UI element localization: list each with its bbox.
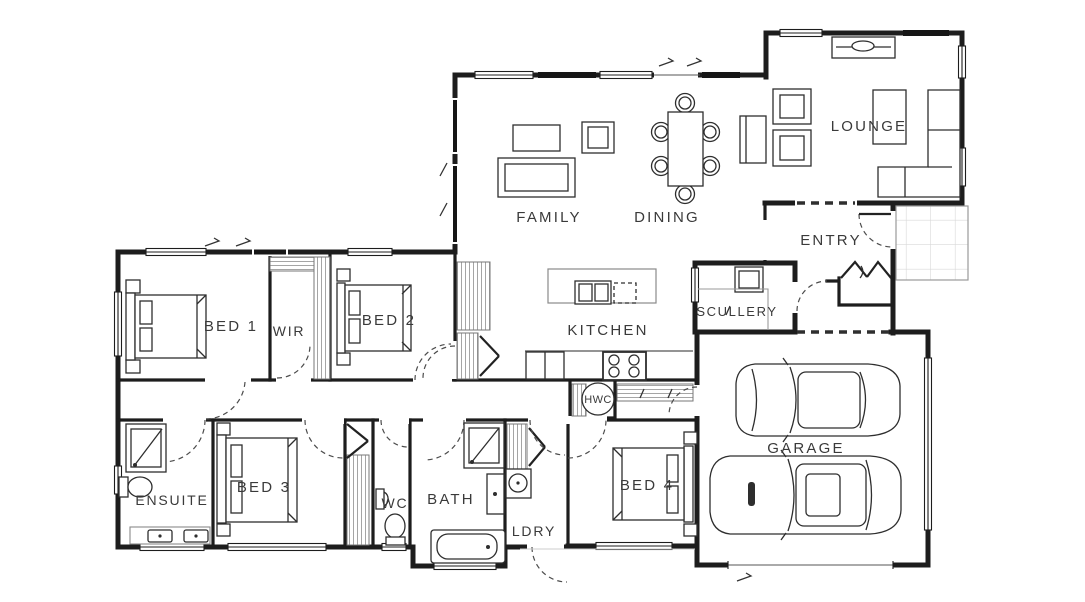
room-label-bed1: BED 1 bbox=[204, 318, 258, 335]
bed1-door-swing bbox=[206, 382, 245, 419]
entry-closet-bifold-door bbox=[841, 262, 891, 278]
room-label-wc: WC bbox=[382, 495, 409, 511]
room-label-bed4: BED 4 bbox=[620, 477, 674, 494]
wc-toilet bbox=[385, 514, 405, 538]
bed4-door-swing bbox=[568, 420, 606, 458]
room-label-bed3: BED 3 bbox=[237, 479, 291, 496]
wir-door-swing bbox=[277, 345, 310, 378]
room-label-garage: GARAGE bbox=[767, 440, 844, 457]
hall-closet-upper bbox=[457, 262, 490, 330]
wir-wardrobe bbox=[314, 257, 330, 379]
car-sedan bbox=[710, 450, 901, 540]
room-label-lounge: LOUNGE bbox=[831, 118, 908, 135]
entry-passage-door-swing bbox=[797, 281, 827, 311]
porch-tiles bbox=[896, 206, 968, 280]
tv bbox=[852, 41, 874, 51]
floor-plan-drawing: FAMILY DINING LOUNGE ENTRY KITCHEN SCULL… bbox=[0, 0, 1085, 602]
family-furniture bbox=[498, 122, 614, 197]
bed3-wardrobe-bifold-door bbox=[347, 424, 368, 458]
room-label-wir: WIR bbox=[273, 323, 306, 339]
room-label-bath: BATH bbox=[427, 491, 475, 508]
family-coffee-table bbox=[513, 125, 560, 151]
lounge-armchair-1 bbox=[773, 89, 811, 124]
room-label-hwc: HWC bbox=[584, 394, 611, 406]
hall-opening-swing bbox=[423, 346, 455, 378]
room-label-bed2: BED 2 bbox=[362, 312, 416, 329]
dining-table bbox=[668, 112, 703, 186]
hall-closet-lower bbox=[457, 333, 478, 379]
laundry-exterior-door-swing bbox=[532, 547, 567, 582]
room-label-ensuite: ENSUITE bbox=[135, 492, 208, 508]
bed1-bed bbox=[126, 280, 206, 373]
wc-door-swing bbox=[381, 420, 408, 447]
bed3-wardrobe bbox=[347, 455, 369, 545]
bed2-door-swing bbox=[415, 344, 451, 380]
room-label-dining: DINING bbox=[634, 209, 700, 226]
room-label-scullery: SCULLERY bbox=[696, 304, 777, 319]
room-label-ldry: LDRY bbox=[512, 523, 556, 539]
room-label-entry: ENTRY bbox=[800, 232, 862, 249]
hall-shelves bbox=[617, 384, 693, 401]
ensuite-door-swing bbox=[163, 420, 205, 462]
room-label-family: FAMILY bbox=[516, 209, 581, 226]
bath-door-swing bbox=[424, 420, 464, 460]
wc-toilet-tank bbox=[386, 537, 405, 545]
room-label-kitchen: KITCHEN bbox=[567, 322, 648, 339]
dining-furniture bbox=[652, 94, 767, 204]
ldry-door-swing bbox=[530, 420, 565, 455]
laundry-cupboard bbox=[507, 424, 527, 470]
cooktop bbox=[603, 352, 646, 380]
buffet-cabinet bbox=[740, 116, 766, 163]
car-suv bbox=[736, 358, 900, 442]
lounge-coffee-table bbox=[873, 90, 906, 144]
bed3-door-swing bbox=[305, 420, 343, 458]
front-door-swing bbox=[859, 214, 892, 247]
hall-closet-bifold-door bbox=[480, 336, 499, 376]
floor-plan-page: FAMILY DINING LOUNGE ENTRY KITCHEN SCULL… bbox=[0, 0, 1085, 602]
porch bbox=[896, 206, 968, 280]
lounge-furniture bbox=[773, 37, 960, 197]
ensuite-toilet-tank bbox=[119, 477, 128, 497]
